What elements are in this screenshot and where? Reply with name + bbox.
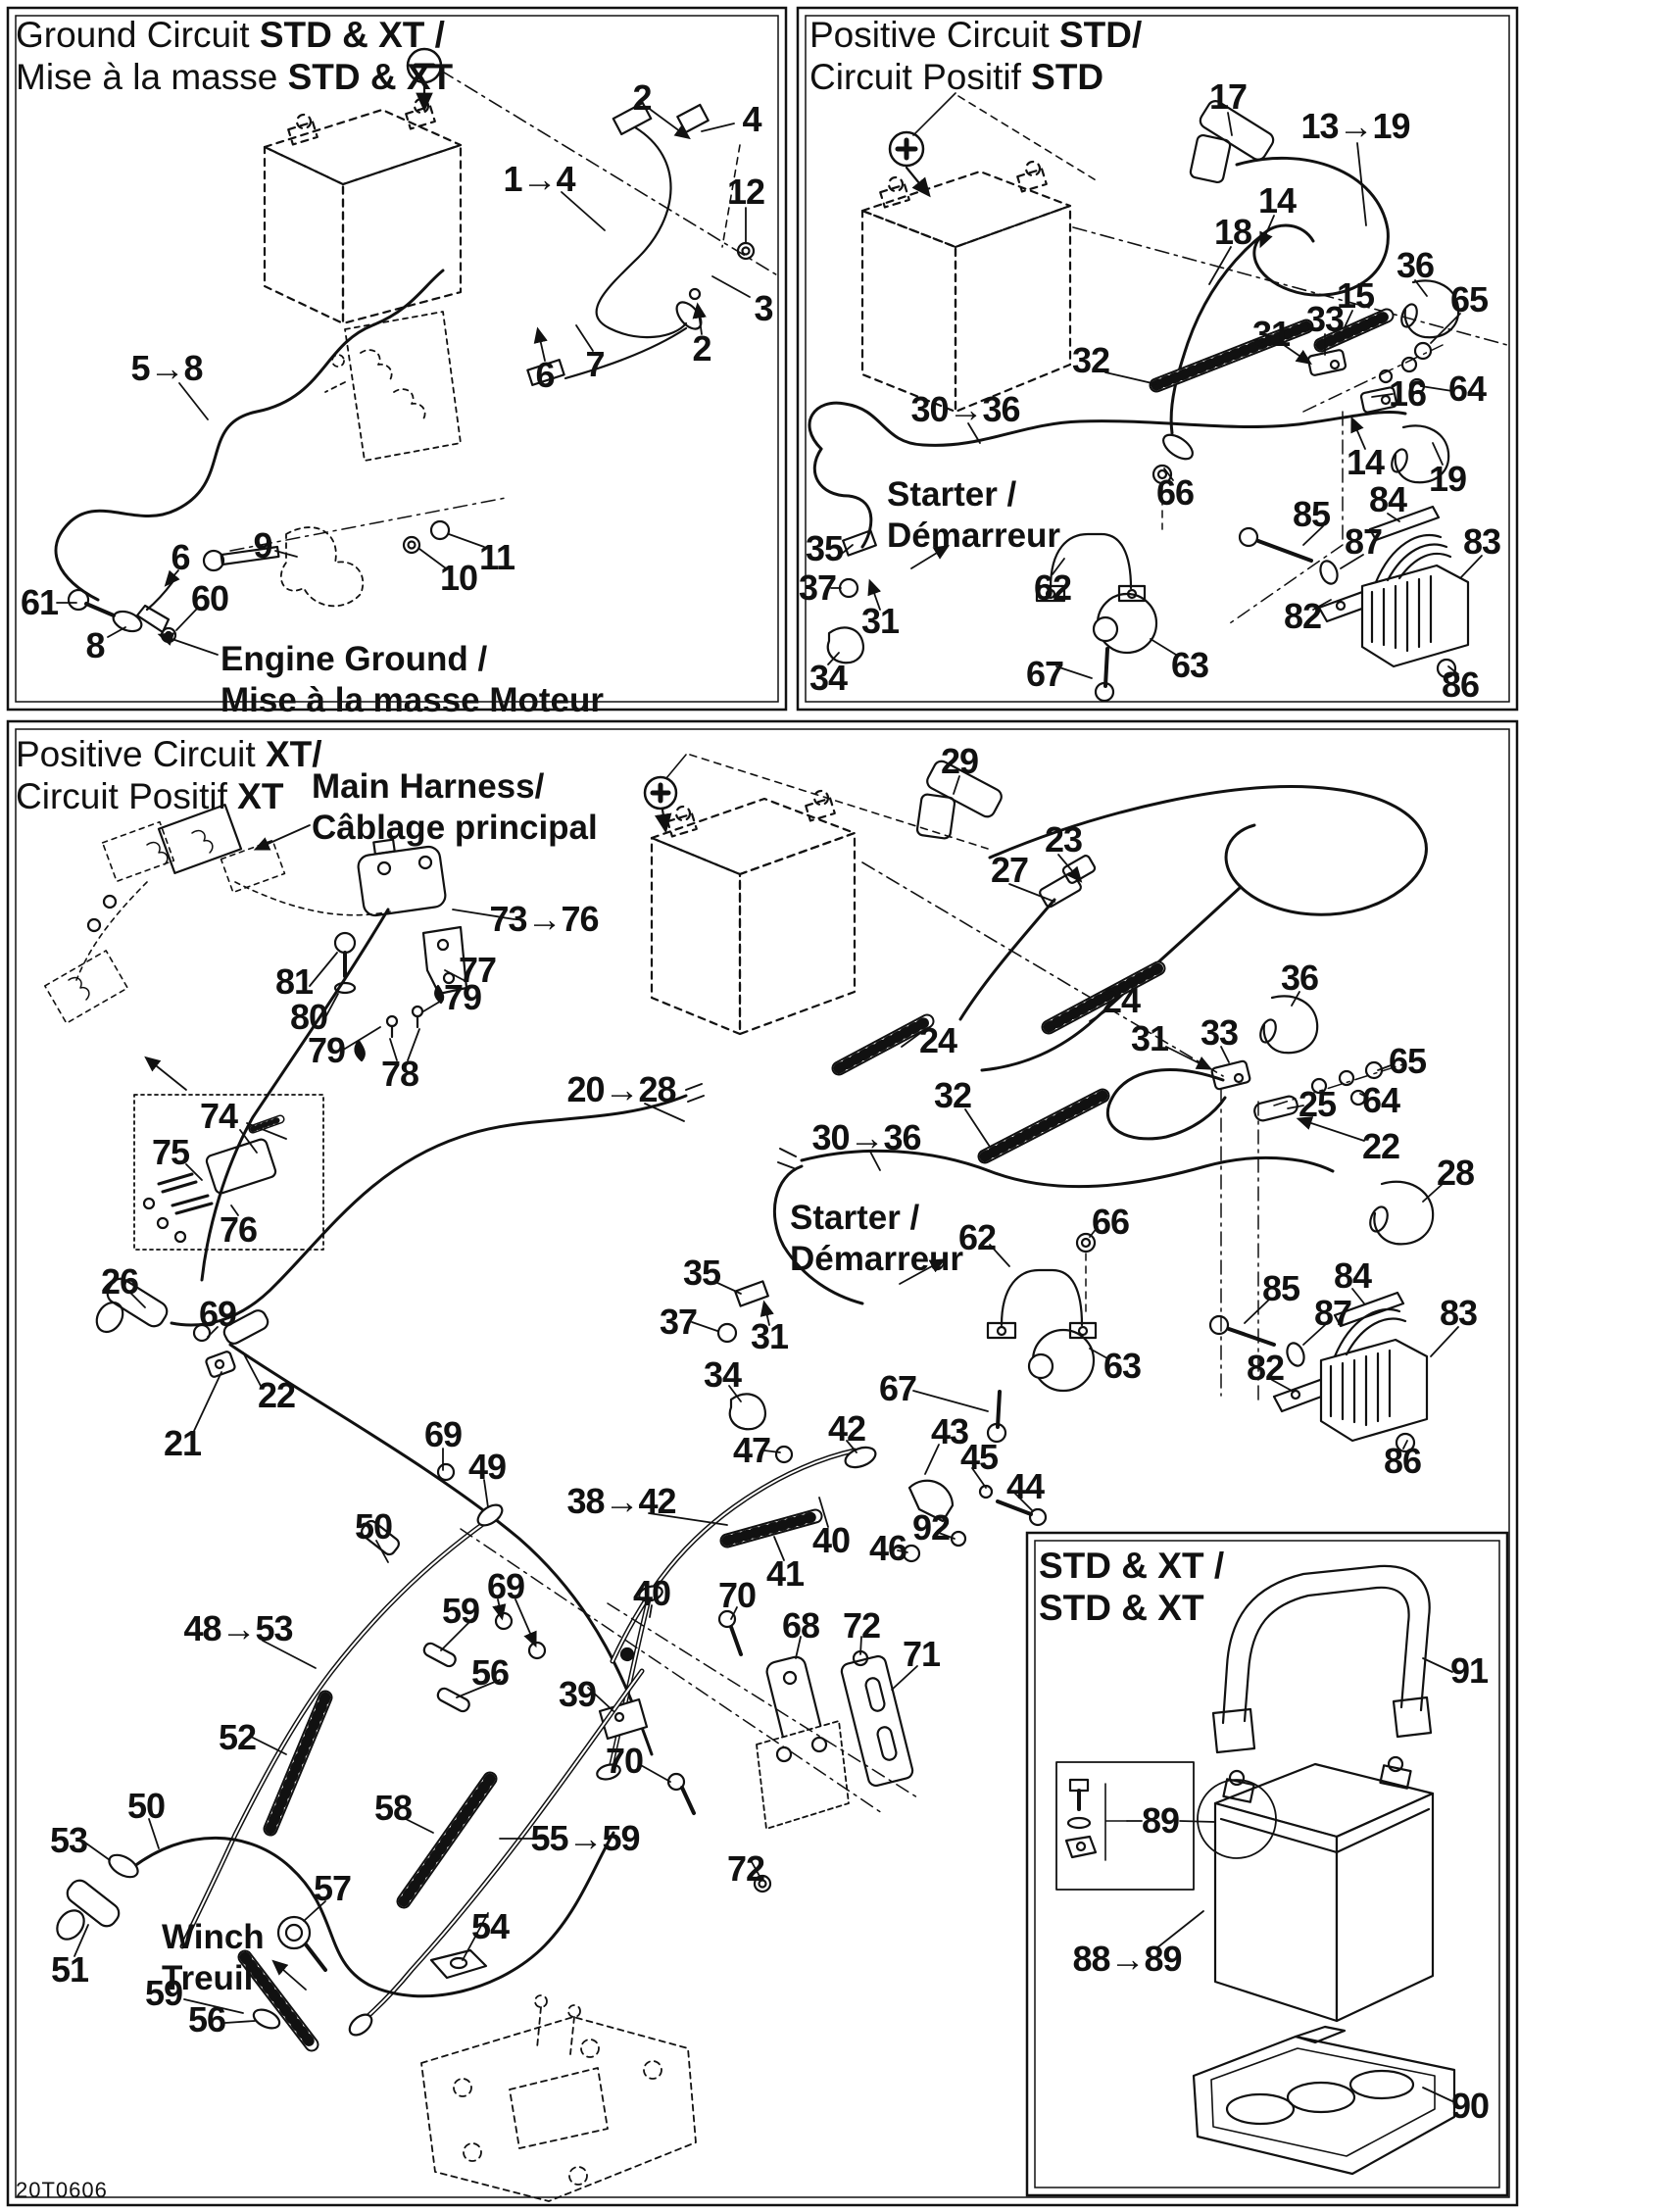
part-callout-37: 37 bbox=[799, 567, 836, 609]
part-callout-62: 62 bbox=[1034, 567, 1071, 609]
part-callout-21: 21 bbox=[164, 1423, 201, 1464]
part-callout-3: 3 bbox=[754, 288, 772, 329]
part-callout-64: 64 bbox=[1362, 1080, 1399, 1121]
part-callout-66: 66 bbox=[1092, 1202, 1129, 1243]
part-callout-42: 42 bbox=[828, 1408, 865, 1450]
part-callout-83: 83 bbox=[1463, 521, 1500, 563]
part-callout-24: 24 bbox=[1102, 980, 1140, 1021]
part-callout-72: 72 bbox=[727, 1848, 764, 1890]
part-callout-69: 69 bbox=[199, 1294, 236, 1335]
part-callout-6: 6 bbox=[171, 537, 189, 578]
winch-note: WinchTreuil bbox=[162, 1917, 265, 1999]
part-callout-65: 65 bbox=[1450, 279, 1488, 320]
part-callout-54: 54 bbox=[471, 1906, 509, 1947]
part-callout-83: 83 bbox=[1440, 1293, 1477, 1334]
part-callout-11: 11 bbox=[479, 537, 514, 578]
part-callout-56: 56 bbox=[188, 1999, 225, 2040]
part-callout-62: 62 bbox=[958, 1217, 996, 1258]
part-callout-65: 65 bbox=[1389, 1041, 1426, 1082]
part-callout-60: 60 bbox=[191, 578, 228, 619]
panel-title-positive-xt: Positive Circuit XT/ Circuit Positif XT bbox=[16, 733, 322, 817]
part-callout-50: 50 bbox=[355, 1506, 392, 1548]
part-callout-40: 40 bbox=[633, 1573, 670, 1614]
part-callout-90: 90 bbox=[1451, 2086, 1489, 2127]
part-callout-19: 19 bbox=[1429, 459, 1466, 500]
part-callout-73-76: 73→76 bbox=[489, 899, 598, 940]
drawing-number: 20T0606 bbox=[16, 2178, 108, 2203]
part-callout-28: 28 bbox=[1437, 1153, 1474, 1194]
part-callout-34: 34 bbox=[809, 658, 847, 699]
part-callout-33: 33 bbox=[1306, 299, 1344, 340]
part-callout-34: 34 bbox=[704, 1354, 741, 1396]
part-callout-86: 86 bbox=[1442, 664, 1479, 706]
starter-std-note: Starter /Démarreur bbox=[887, 474, 1060, 557]
part-callout-67: 67 bbox=[879, 1368, 916, 1409]
part-callout-36: 36 bbox=[1281, 958, 1318, 999]
part-callout-41: 41 bbox=[766, 1553, 804, 1595]
part-callout-27: 27 bbox=[991, 850, 1028, 891]
part-callout-32: 32 bbox=[1072, 340, 1109, 381]
part-callout-45: 45 bbox=[960, 1437, 998, 1478]
part-callout-31: 31 bbox=[1252, 314, 1290, 355]
part-callout-87: 87 bbox=[1345, 521, 1382, 563]
part-callout-85: 85 bbox=[1293, 494, 1330, 535]
part-callout-32: 32 bbox=[934, 1075, 971, 1116]
main-harness-note: Main Harness/Câblage principal bbox=[312, 766, 598, 849]
part-callout-13-19: 13→19 bbox=[1300, 106, 1409, 147]
part-callout-17: 17 bbox=[1209, 76, 1247, 118]
part-callout-69: 69 bbox=[487, 1566, 524, 1607]
starter-xt-note: Starter /Démarreur bbox=[790, 1198, 963, 1280]
part-callout-29: 29 bbox=[941, 741, 978, 782]
part-callout-14: 14 bbox=[1347, 442, 1384, 483]
part-callout-14: 14 bbox=[1258, 180, 1296, 221]
part-callout-31: 31 bbox=[751, 1316, 788, 1357]
part-callout-89: 89 bbox=[1142, 1800, 1179, 1842]
part-callout-24: 24 bbox=[919, 1020, 956, 1061]
part-callout-52: 52 bbox=[219, 1717, 256, 1758]
part-callout-71: 71 bbox=[903, 1634, 940, 1675]
part-callout-91: 91 bbox=[1450, 1650, 1488, 1692]
part-callout-66: 66 bbox=[1156, 472, 1194, 514]
part-callout-70: 70 bbox=[718, 1575, 756, 1616]
part-callout-64: 64 bbox=[1448, 369, 1486, 410]
part-callout-58: 58 bbox=[374, 1788, 412, 1829]
part-callout-84: 84 bbox=[1369, 479, 1406, 520]
part-callout-63: 63 bbox=[1171, 645, 1208, 686]
part-callout-36: 36 bbox=[1396, 245, 1434, 286]
part-callout-75: 75 bbox=[152, 1132, 189, 1173]
part-callout-39: 39 bbox=[559, 1674, 596, 1715]
part-callout-35: 35 bbox=[806, 528, 843, 569]
panel-title-positive-std: Positive Circuit STD/ Circuit Positif ST… bbox=[809, 14, 1142, 98]
part-callout-53: 53 bbox=[50, 1820, 87, 1861]
part-callout-79: 79 bbox=[308, 1030, 345, 1071]
part-callout-22: 22 bbox=[1362, 1126, 1399, 1167]
part-callout-30-36: 30→36 bbox=[811, 1117, 920, 1158]
part-callout-30-36: 30→36 bbox=[910, 389, 1019, 430]
part-callout-48-53: 48→53 bbox=[183, 1608, 292, 1649]
part-callout-4: 4 bbox=[742, 99, 760, 140]
part-callout-69: 69 bbox=[424, 1414, 462, 1455]
part-callout-1-4: 1→4 bbox=[503, 159, 574, 200]
part-callout-9: 9 bbox=[253, 525, 271, 566]
parts-diagram-page: Ground Circuit STD & XT / Mise à la mass… bbox=[0, 0, 1666, 2212]
part-callout-79: 79 bbox=[444, 977, 481, 1018]
part-callout-72: 72 bbox=[843, 1605, 880, 1647]
part-callout-38-42: 38→42 bbox=[566, 1481, 675, 1522]
engine-ground-note: Engine Ground /Mise à la masse Moteur bbox=[220, 639, 604, 721]
part-callout-68: 68 bbox=[782, 1605, 819, 1647]
part-callout-57: 57 bbox=[314, 1868, 351, 1909]
part-callout-6: 6 bbox=[535, 355, 554, 396]
part-callout-82: 82 bbox=[1284, 596, 1321, 637]
part-callout-55-59: 55→59 bbox=[530, 1818, 639, 1859]
part-callout-84: 84 bbox=[1334, 1255, 1371, 1297]
part-callout-25: 25 bbox=[1298, 1084, 1336, 1125]
part-callout-92: 92 bbox=[912, 1507, 950, 1548]
part-callout-44: 44 bbox=[1006, 1466, 1044, 1507]
part-callout-37: 37 bbox=[660, 1302, 697, 1343]
part-callout-2: 2 bbox=[632, 77, 651, 119]
part-callout-18: 18 bbox=[1214, 212, 1251, 253]
labels-layer: Ground Circuit STD & XT / Mise à la mass… bbox=[0, 0, 1666, 2212]
part-callout-33: 33 bbox=[1200, 1012, 1238, 1054]
part-callout-23: 23 bbox=[1045, 819, 1082, 860]
part-callout-85: 85 bbox=[1262, 1268, 1299, 1309]
part-callout-8: 8 bbox=[85, 625, 104, 666]
part-callout-40: 40 bbox=[812, 1520, 850, 1561]
panel-title-std-xt: STD & XT / STD & XT bbox=[1039, 1545, 1224, 1629]
part-callout-46: 46 bbox=[869, 1528, 906, 1569]
part-callout-67: 67 bbox=[1026, 654, 1063, 695]
part-callout-61: 61 bbox=[21, 582, 58, 623]
part-callout-10: 10 bbox=[440, 558, 477, 599]
part-callout-49: 49 bbox=[468, 1447, 506, 1488]
panel-title-ground: Ground Circuit STD & XT / Mise à la mass… bbox=[16, 14, 453, 98]
part-callout-7: 7 bbox=[585, 344, 604, 385]
part-callout-70: 70 bbox=[606, 1741, 643, 1782]
part-callout-22: 22 bbox=[258, 1375, 295, 1416]
part-callout-82: 82 bbox=[1247, 1348, 1284, 1389]
part-callout-5-8: 5→8 bbox=[130, 348, 202, 389]
part-callout-59: 59 bbox=[442, 1591, 479, 1632]
part-callout-74: 74 bbox=[200, 1096, 237, 1137]
part-callout-86: 86 bbox=[1384, 1441, 1421, 1482]
part-callout-51: 51 bbox=[51, 1949, 88, 1991]
part-callout-63: 63 bbox=[1103, 1346, 1141, 1387]
part-callout-20-28: 20→28 bbox=[566, 1069, 675, 1110]
part-callout-26: 26 bbox=[101, 1261, 138, 1303]
part-callout-12: 12 bbox=[727, 172, 764, 213]
part-callout-2: 2 bbox=[692, 328, 710, 369]
part-callout-31: 31 bbox=[1131, 1018, 1168, 1059]
part-callout-50: 50 bbox=[127, 1786, 165, 1827]
part-callout-87: 87 bbox=[1314, 1293, 1351, 1334]
part-callout-76: 76 bbox=[220, 1209, 257, 1251]
part-callout-88-89: 88→89 bbox=[1072, 1939, 1181, 1980]
part-callout-16: 16 bbox=[1389, 373, 1426, 415]
part-callout-35: 35 bbox=[683, 1253, 720, 1294]
part-callout-47: 47 bbox=[733, 1430, 770, 1471]
part-callout-56: 56 bbox=[471, 1652, 509, 1694]
part-callout-78: 78 bbox=[381, 1054, 418, 1095]
part-callout-31: 31 bbox=[861, 601, 899, 642]
